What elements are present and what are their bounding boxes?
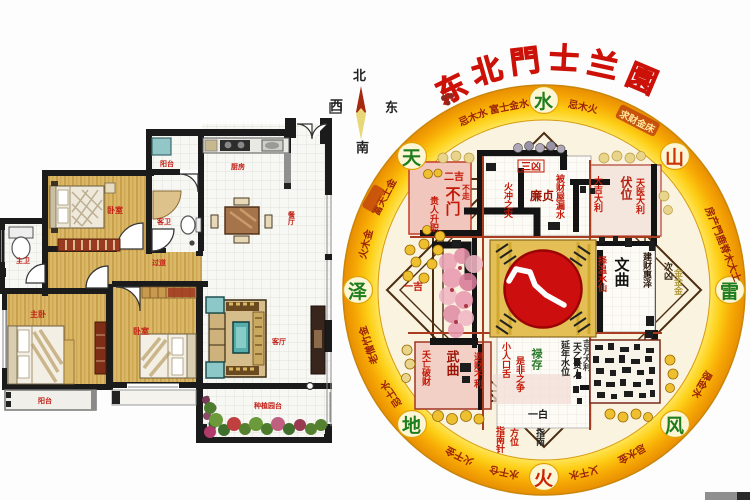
svg-text:火冲之灾: 火冲之灾: [503, 182, 514, 219]
svg-text:主卧: 主卧: [30, 309, 46, 319]
svg-text:天: 天: [402, 148, 422, 169]
svg-text:阳台: 阳台: [38, 396, 52, 405]
svg-text:卧室: 卧室: [107, 205, 123, 215]
svg-text:是非之争: 是非之争: [515, 356, 526, 393]
svg-text:客卫: 客卫: [156, 217, 171, 226]
svg-text:雷: 雷: [720, 281, 739, 303]
svg-text:三凶: 三凶: [521, 161, 541, 173]
svg-text:不门: 不门: [444, 186, 461, 217]
svg-text:东: 东: [385, 100, 398, 115]
svg-text:退财不利: 退财不利: [473, 352, 484, 389]
svg-text:小人口舌: 小人口舌: [501, 341, 512, 379]
svg-text:择温水仙: 择温水仙: [597, 255, 608, 293]
svg-text:南: 南: [356, 140, 369, 155]
svg-text:客厅: 客厅: [271, 337, 286, 346]
svg-text:过道: 过道: [152, 258, 166, 267]
svg-text:建财惠泽: 建财惠泽: [642, 251, 653, 289]
svg-text:被财屋漏水: 被财屋漏水: [555, 173, 566, 220]
svg-text:厨房: 厨房: [231, 162, 245, 171]
svg-text:伏位: 伏位: [619, 175, 633, 201]
svg-text:不走: 不走: [461, 184, 471, 201]
svg-text:士: 士: [548, 42, 580, 77]
svg-text:水: 水: [534, 91, 554, 113]
svg-text:一白: 一白: [528, 408, 548, 421]
svg-text:二吉: 二吉: [444, 170, 464, 183]
svg-text:西: 西: [330, 98, 343, 113]
svg-text:火: 火: [534, 468, 554, 490]
svg-text:指南: 指南: [535, 427, 545, 447]
svg-text:贵人升职: 贵人升职: [429, 195, 440, 233]
svg-text:山: 山: [665, 147, 684, 169]
svg-text:金金金: 金金金: [673, 267, 684, 295]
svg-text:夭亡破财: 夭亡破财: [421, 350, 432, 387]
svg-text:北: 北: [353, 68, 366, 83]
svg-text:天医大利: 天医大利: [635, 178, 646, 215]
svg-text:廉贞: 廉贞: [530, 188, 554, 203]
svg-text:指南针: 指南针: [495, 425, 505, 454]
svg-text:一吉: 一吉: [403, 280, 423, 293]
svg-text:武曲: 武曲: [445, 349, 460, 377]
svg-text:延年水位: 延年水位: [560, 339, 571, 377]
svg-text:主卫: 主卫: [16, 256, 30, 265]
svg-text:地: 地: [402, 414, 421, 437]
svg-text:大吉大利: 大吉大利: [593, 175, 604, 213]
svg-text:泽: 泽: [348, 281, 367, 303]
svg-text:方位: 方位: [509, 427, 519, 447]
svg-text:种植园台: 种植园台: [253, 401, 282, 410]
svg-text:次凶: 次凶: [663, 261, 673, 281]
svg-text:阳台: 阳台: [160, 159, 174, 168]
svg-text:禄存: 禄存: [530, 347, 544, 371]
svg-text:文曲: 文曲: [613, 256, 630, 288]
svg-text:风: 风: [665, 415, 684, 437]
svg-text:門: 門: [508, 44, 542, 80]
svg-text:卧室: 卧室: [133, 326, 149, 336]
